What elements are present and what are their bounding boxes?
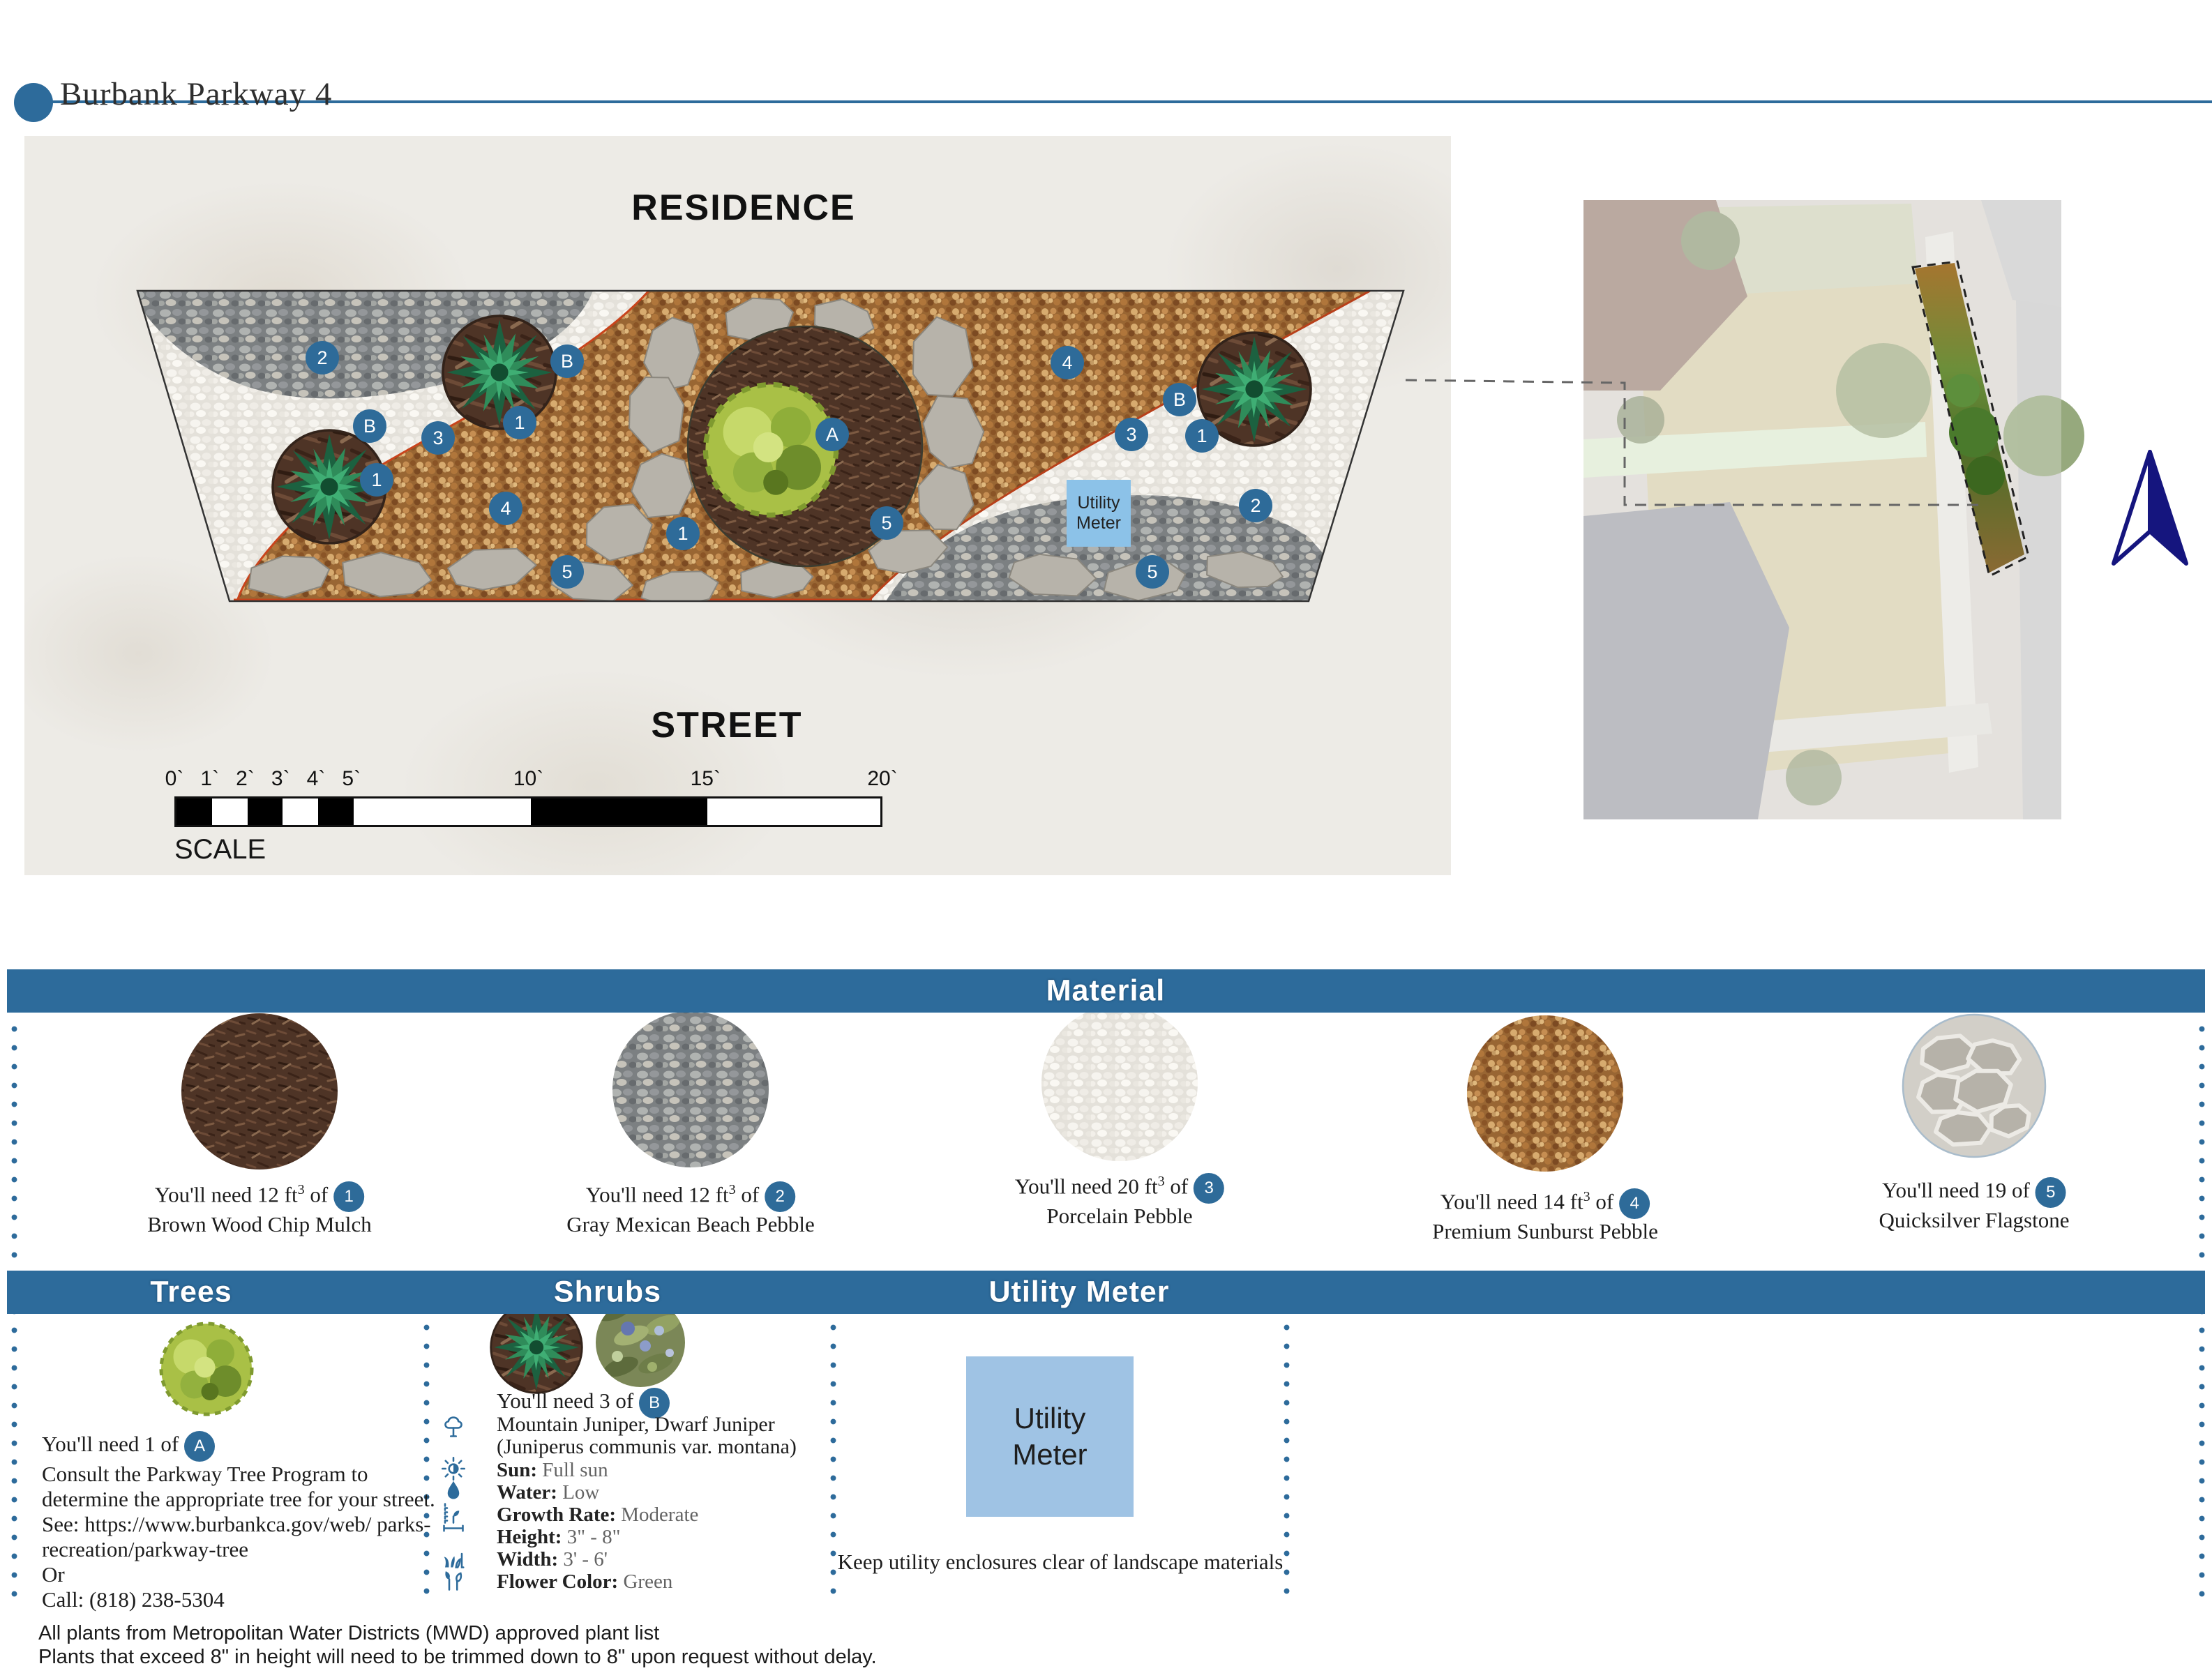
material-section-title: Material — [1046, 974, 1166, 1008]
shrub-symbol — [443, 316, 556, 429]
shrub-legend-image — [491, 1302, 582, 1393]
scale-tick-label: 0` — [165, 767, 184, 791]
plan-marker-badge: 5 — [550, 555, 584, 589]
material-photo-4 — [1467, 1015, 1623, 1172]
shrub-attr-water: Water: Low — [497, 1481, 599, 1504]
scale-tick-label: 5` — [342, 767, 361, 791]
material-badge-3: 3 — [1194, 1173, 1224, 1204]
shrub-attr-sun: Sun: Full sun — [497, 1459, 608, 1482]
growth-rate-icon — [441, 1501, 466, 1526]
scale-tick-label: 3` — [271, 767, 290, 791]
utility-meter-legend-box: Utility Meter — [966, 1356, 1134, 1517]
page-title: Burbank Parkway 4 — [60, 75, 332, 113]
plan-marker-badge: 2 — [306, 341, 339, 374]
plan-marker-badge: B — [1163, 383, 1196, 416]
scale-tick-label: 15` — [691, 767, 721, 791]
shrub-botanical-name: (Juniperus communis var. montana) — [497, 1435, 797, 1459]
utility-section-title: Utility Meter — [988, 1275, 1169, 1310]
street-label: STREET — [651, 704, 802, 746]
scale-tick-label: 20` — [867, 767, 897, 791]
trees-instruction-line: See: https://www.burbankca.gov/web/ park… — [42, 1512, 460, 1537]
flower-color-icon — [441, 1568, 466, 1593]
title-rule — [21, 100, 2212, 103]
material-badge-4: 4 — [1619, 1188, 1650, 1219]
material-photo-2 — [612, 1011, 769, 1167]
plan-marker-badge: 3 — [1115, 418, 1148, 451]
trees-need-line: You'll need 1 ofA — [42, 1431, 215, 1462]
dotted-separator — [11, 1020, 17, 1597]
material-name: Premium Sunburst Pebble — [1432, 1219, 1658, 1243]
shrub-attr-height: Height: 3" - 8" — [497, 1526, 621, 1549]
trees-instructions: Consult the Parkway Tree Program todeter… — [42, 1462, 460, 1612]
plan-marker-badge: 1 — [360, 463, 393, 497]
trees-instruction-line: Consult the Parkway Tree Program to — [42, 1462, 460, 1487]
plan-utility-line2: Meter — [1076, 513, 1121, 533]
plan-utility-line1: Utility — [1077, 493, 1120, 513]
material-name: Gray Mexican Beach Pebble — [566, 1212, 815, 1236]
scale-tick-label: 1` — [200, 767, 219, 791]
trees-instruction-line: Call: (818) 238-5304 — [42, 1587, 460, 1612]
material-label-1: You'll need 12 ft3 of1Brown Wood Chip Mu… — [147, 1177, 372, 1237]
shrub-attr-width: Width: 3' - 6' — [497, 1548, 608, 1571]
material-badge-2: 2 — [765, 1181, 795, 1212]
trees-instruction-line: recreation/parkway-tree — [42, 1537, 460, 1562]
tree-legend-image — [161, 1324, 252, 1414]
trees-instruction-line: determine the appropriate tree for your … — [42, 1487, 460, 1512]
scale-bar-segment — [531, 798, 708, 825]
plan-marker-badge: 1 — [503, 406, 536, 439]
north-arrow-icon — [2114, 452, 2186, 563]
material-section-header: Material — [7, 969, 2205, 1013]
footer-note-2: Plants that exceed 8" in height will nee… — [38, 1646, 877, 1669]
scale-tick-label: 4` — [307, 767, 326, 791]
shrub-attr-growthrate: Growth Rate: Moderate — [497, 1504, 698, 1527]
scale-bar-segment — [176, 798, 212, 825]
scale-tick-label: 10` — [513, 767, 543, 791]
trees-section-title: Trees — [150, 1275, 232, 1310]
plan-marker-badge: B — [353, 409, 386, 443]
plan-marker-badge: 5 — [1136, 555, 1169, 589]
material-name: Porcelain Pebble — [1046, 1204, 1192, 1228]
residence-label: RESIDENCE — [631, 187, 855, 229]
plan-marker-badge: 2 — [1239, 489, 1272, 522]
tree-a-badge: A — [184, 1431, 215, 1462]
plan-marker-badge: 1 — [1185, 419, 1219, 453]
material-photo-1 — [181, 1013, 338, 1169]
width-icon — [441, 1545, 466, 1570]
plan-marker-badge: 3 — [421, 421, 455, 455]
plan-utility-meter-box: Utility Meter — [1067, 480, 1131, 547]
footer-note-1: All plants from Metropolitan Water Distr… — [38, 1622, 659, 1645]
plan-marker-badge: 5 — [870, 506, 903, 540]
scale-bar-segment — [318, 798, 354, 825]
material-label-2: You'll need 12 ft3 of2Gray Mexican Beach… — [566, 1177, 815, 1237]
plan-marker-badge: 4 — [489, 492, 522, 525]
material-badge-5: 5 — [2036, 1177, 2066, 1208]
water-drop-icon — [441, 1478, 466, 1504]
plan-marker-badge: 1 — [666, 517, 700, 550]
trees-instruction-line: Or — [42, 1562, 460, 1587]
plan-marker-badge: A — [815, 418, 849, 451]
scale-bar-segment — [248, 798, 283, 825]
utility-note: Keep utility enclosures clear of landsca… — [809, 1550, 1311, 1575]
material-label-4: You'll need 14 ft3 of4Premium Sunburst P… — [1432, 1184, 1658, 1244]
plan-marker-badge: B — [550, 345, 584, 378]
scale-tick-label: 2` — [236, 767, 255, 791]
height-icon — [441, 1523, 466, 1548]
utility-box-line2: Meter — [1012, 1437, 1087, 1474]
plan-marker-badge: 4 — [1051, 346, 1084, 379]
dotted-separator — [2199, 1020, 2205, 1597]
aerial-photo — [1406, 200, 2084, 819]
material-name: Brown Wood Chip Mulch — [147, 1212, 372, 1236]
material-name: Quicksilver Flagstone — [1879, 1208, 2070, 1232]
tree-icon — [441, 1414, 466, 1439]
material-photo-3 — [1041, 1005, 1198, 1161]
legend-sections-header: Trees Shrubs Utility Meter — [7, 1271, 2205, 1314]
material-label-3: You'll need 20 ft3 of3Porcelain Pebble — [1015, 1169, 1224, 1229]
sun-icon — [441, 1456, 466, 1481]
shrub-attr-flowercolor: Flower Color: Green — [497, 1570, 672, 1593]
parkway-tree-symbol — [705, 384, 836, 515]
scale-word: SCALE — [174, 834, 266, 865]
shrub-name: Mountain Juniper, Dwarf Juniper — [497, 1413, 775, 1437]
scale-bar — [174, 796, 882, 827]
shrubs-section-title: Shrubs — [554, 1275, 661, 1310]
material-label-5: You'll need 19 of5Quicksilver Flagstone — [1879, 1177, 2070, 1233]
utility-box-line1: Utility — [1014, 1400, 1086, 1437]
material-photo-5 — [1903, 1015, 2045, 1157]
plan-trapezoid — [137, 291, 1404, 610]
material-badge-1: 1 — [333, 1181, 364, 1212]
